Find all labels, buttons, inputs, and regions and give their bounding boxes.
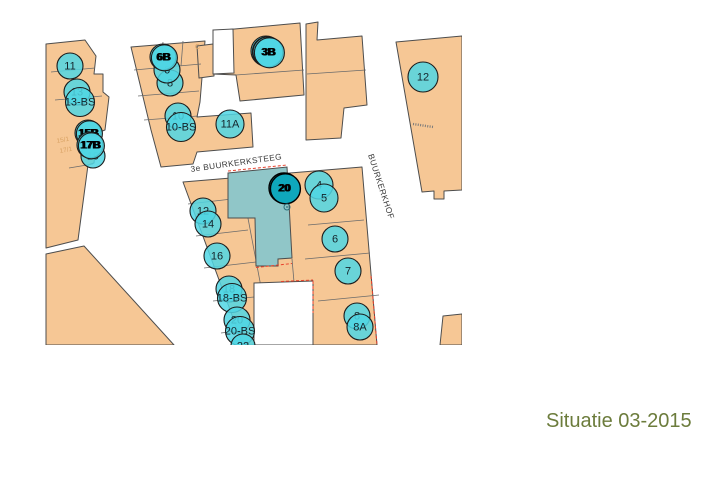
house-number-marker: 5 [310, 184, 338, 212]
svg-text:6B: 6B [157, 52, 171, 64]
building [440, 314, 462, 345]
svg-text:14: 14 [202, 219, 214, 231]
street-name-label: BUURKERKHOF [366, 153, 397, 221]
house-number-marker: 8A [347, 314, 373, 340]
house-number-marker: 6 [322, 226, 348, 252]
svg-text:16: 16 [211, 251, 223, 263]
svg-text:6: 6 [332, 234, 338, 246]
house-number-marker: 17B17B [77, 132, 104, 159]
svg-text:11: 11 [64, 61, 75, 73]
house-number-marker: 12 [408, 62, 438, 92]
svg-text:18-BS: 18-BS [217, 293, 248, 305]
house-number-marker: 2020 [269, 173, 300, 204]
svg-text:12: 12 [417, 72, 429, 84]
situation-drawing-page: 3e BUURKERKSTEEG BUURKERKHOF 15/1 17/1 C… [0, 0, 710, 478]
parcel-number-label: C [195, 44, 200, 51]
courtyard [254, 281, 313, 345]
svg-text:10-BS: 10-BS [166, 122, 197, 134]
svg-text:17B: 17B [81, 140, 101, 152]
svg-text:3B: 3B [262, 47, 276, 59]
house-number-marker: 16 [204, 243, 230, 269]
situation-map: 3e BUURKERKSTEEG BUURKERKHOF 15/1 17/1 C… [45, 10, 462, 345]
house-number-marker: 13-BS [65, 88, 96, 117]
house-number-marker: 11A [216, 110, 244, 138]
house-number-marker: 3B3B [253, 37, 284, 68]
svg-text:8A: 8A [353, 322, 367, 334]
house-number-marker: 7 [335, 258, 361, 284]
svg-text:20: 20 [279, 183, 291, 195]
svg-text:22: 22 [237, 341, 249, 346]
svg-text:13-BS: 13-BS [65, 97, 96, 109]
svg-text:5: 5 [321, 193, 327, 205]
svg-text:7: 7 [345, 266, 351, 278]
house-number-marker: 11 [57, 53, 83, 79]
building [306, 22, 367, 140]
svg-text:11A: 11A [221, 119, 240, 131]
house-number-marker: 6B6B [150, 44, 177, 71]
courtyard [213, 29, 234, 74]
house-number-marker: 10-BS [166, 113, 197, 142]
building [396, 36, 462, 199]
drawing-title: Situatie 03-2015 [546, 410, 692, 433]
building [46, 246, 174, 345]
house-number-marker: 14 [195, 211, 221, 237]
